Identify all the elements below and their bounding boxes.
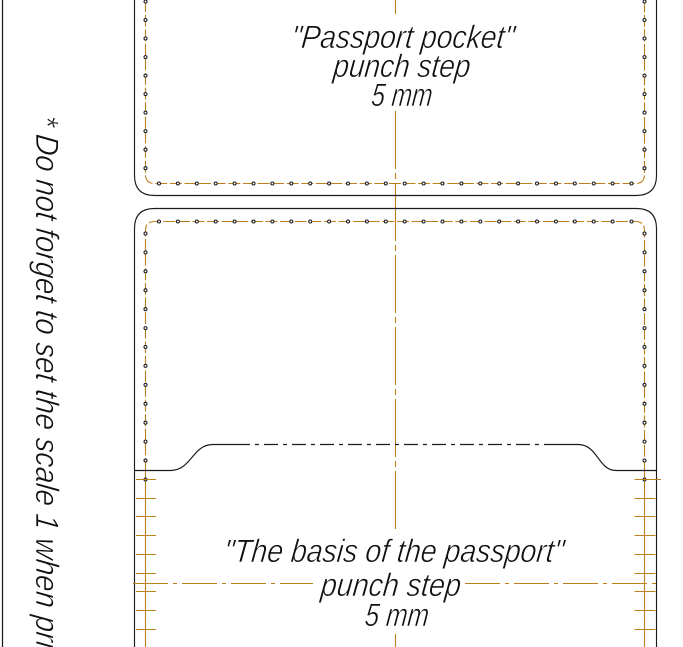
svg-text:5 mm: 5 mm bbox=[363, 597, 431, 633]
svg-text:* Do not forget to set the sca: * Do not forget to set the scale 1 when … bbox=[29, 113, 65, 647]
svg-text:"The basis of the passport": "The basis of the passport" bbox=[222, 533, 567, 569]
svg-text:5 mm: 5 mm bbox=[370, 77, 435, 113]
